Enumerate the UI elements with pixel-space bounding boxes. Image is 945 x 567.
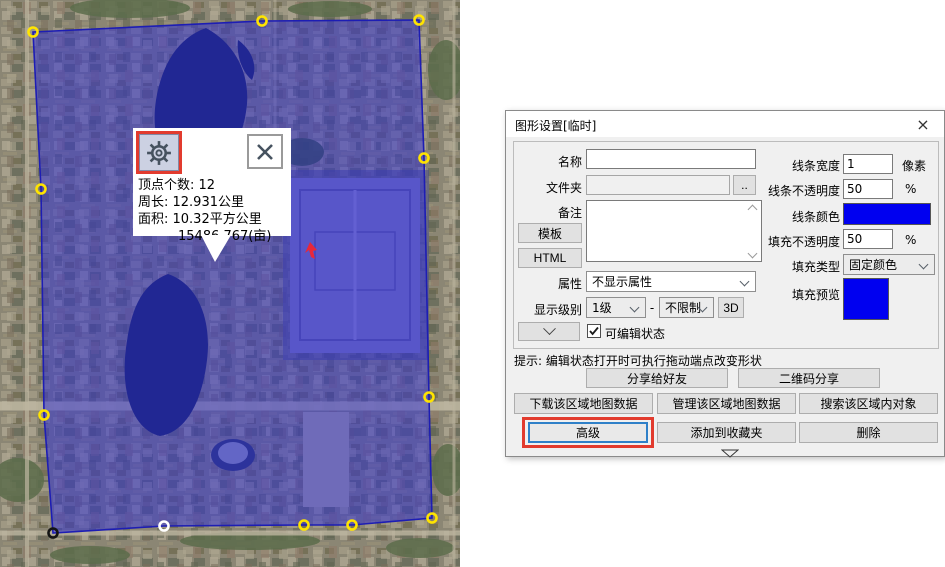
fill-opacity-unit: % xyxy=(905,233,916,247)
stat-perimeter: 周长: 12.931公里 xyxy=(138,194,271,211)
selection-polygon[interactable] xyxy=(33,20,432,533)
red-highlight-box: 高级 xyxy=(522,417,654,448)
collapse-triangle-icon[interactable] xyxy=(721,449,739,458)
line-width-unit: 像素 xyxy=(902,157,926,174)
chevron-down-icon xyxy=(919,260,929,270)
settings-button[interactable] xyxy=(139,134,179,171)
polygon-info-popup: 顶点个数: 12 周长: 12.931公里 面积: 10.32平方公里 1548… xyxy=(133,128,291,236)
html-button[interactable]: HTML xyxy=(518,248,582,268)
share-qrcode-button[interactable]: 二维码分享 xyxy=(738,368,880,388)
tip-text: 提示: 编辑状态打开时可执行拖动端点改变形状 xyxy=(514,352,762,369)
red-highlight-box xyxy=(136,131,182,174)
dialog-titlebar[interactable]: 图形设置[临时] × xyxy=(506,111,944,137)
attributes-label: 属性 xyxy=(524,275,582,292)
line-width-label: 线条宽度 xyxy=(716,157,840,174)
manage-area-button[interactable]: 管理该区域地图数据 xyxy=(657,393,796,414)
folder-input[interactable] xyxy=(586,175,730,195)
chevron-down-icon xyxy=(543,322,556,335)
editable-checkbox-label: 可编辑状态 xyxy=(605,325,665,342)
editable-checkbox[interactable] xyxy=(587,324,601,338)
check-icon xyxy=(588,325,600,337)
line-color-label: 线条颜色 xyxy=(716,208,840,225)
popup-close-button[interactable] xyxy=(247,134,283,169)
popup-tail xyxy=(199,235,233,263)
stat-vertex-count: 顶点个数: 12 xyxy=(138,177,271,194)
fill-preview-label: 填充预览 xyxy=(716,286,840,303)
stat-area: 面积: 10.32平方公里 xyxy=(138,211,271,228)
name-label: 名称 xyxy=(524,153,582,170)
fill-opacity-input[interactable] xyxy=(843,229,893,249)
share-friend-button[interactable]: 分享给好友 xyxy=(586,368,728,388)
graphic-settings-dialog: 图形设置[临时] × 名称 文件夹 .. 备注 模板 HTML 属性 不显示属性… xyxy=(505,110,945,457)
chevron-down-icon xyxy=(740,277,750,287)
fill-preview-swatch xyxy=(843,278,889,320)
level-separator: - xyxy=(648,301,656,315)
close-icon xyxy=(254,141,276,163)
folder-label: 文件夹 xyxy=(524,179,582,196)
line-opacity-label: 线条不透明度 xyxy=(716,182,840,199)
add-favorite-button[interactable]: 添加到收藏夹 xyxy=(657,422,796,443)
fill-opacity-label: 填充不透明度 xyxy=(716,233,840,250)
chevron-down-icon xyxy=(630,303,640,313)
dialog-close-button[interactable]: × xyxy=(906,111,940,137)
map-viewport[interactable]: 顶点个数: 12 周长: 12.931公里 面积: 10.32平方公里 1548… xyxy=(0,0,460,567)
satellite-basemap xyxy=(0,0,460,567)
expand-chevron-button[interactable] xyxy=(518,322,580,341)
gear-icon xyxy=(146,140,172,166)
line-width-input[interactable] xyxy=(843,154,893,174)
line-opacity-input[interactable] xyxy=(843,179,893,199)
level-max-value: 不限制 xyxy=(665,299,701,316)
line-opacity-unit: % xyxy=(905,182,916,196)
level-max-select[interactable]: 不限制 xyxy=(659,297,714,318)
fill-type-select[interactable]: 固定颜色 xyxy=(843,254,935,275)
delete-button[interactable]: 删除 xyxy=(799,422,938,443)
advanced-button[interactable]: 高级 xyxy=(528,422,648,443)
search-area-button[interactable]: 搜索该区域内对象 xyxy=(799,393,938,414)
fill-type-value: 固定颜色 xyxy=(849,256,897,273)
level-min-value: 1级 xyxy=(592,299,612,316)
level-min-select[interactable]: 1级 xyxy=(586,297,646,318)
template-button[interactable]: 模板 xyxy=(518,223,582,243)
dialog-title: 图形设置[临时] xyxy=(515,117,596,134)
download-area-button[interactable]: 下载该区域地图数据 xyxy=(514,393,653,414)
note-label: 备注 xyxy=(524,204,582,221)
line-color-swatch[interactable] xyxy=(843,203,931,225)
display-level-label: 显示级别 xyxy=(516,301,582,318)
fill-type-label: 填充类型 xyxy=(716,258,840,275)
attributes-value: 不显示属性 xyxy=(592,273,652,290)
